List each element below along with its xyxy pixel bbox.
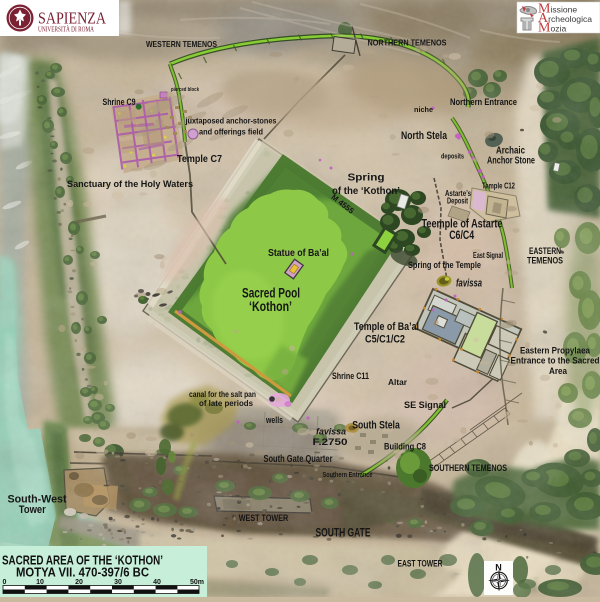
svg-text:Sanctuary of the Holy Waters: Sanctuary of the Holy Waters bbox=[67, 179, 193, 190]
svg-text:TEMENOS: TEMENOS bbox=[527, 256, 563, 266]
svg-text:juxtaposed anchor-stones: juxtaposed anchor-stones bbox=[185, 116, 277, 126]
svg-text:C6/C4: C6/C4 bbox=[449, 230, 474, 242]
svg-text:favissa: favissa bbox=[456, 278, 482, 290]
svg-text:deposits: deposits bbox=[441, 152, 464, 161]
svg-text:favissa: favissa bbox=[316, 427, 346, 437]
svg-text:North Stela: North Stela bbox=[401, 130, 448, 142]
svg-text:EASTERN: EASTERN bbox=[529, 246, 561, 256]
svg-text:UNIVERSITÀ DI ROMA: UNIVERSITÀ DI ROMA bbox=[38, 24, 94, 34]
svg-text:Statue of Ba’al: Statue of Ba’al bbox=[268, 247, 329, 259]
svg-text:SE Signal: SE Signal bbox=[404, 400, 446, 410]
svg-text:Shrine C9: Shrine C9 bbox=[103, 97, 136, 107]
svg-text:wells: wells bbox=[265, 415, 283, 425]
svg-text:Spring: Spring bbox=[348, 172, 385, 184]
svg-text:NORTHERN TEMENOS: NORTHERN TEMENOS bbox=[368, 38, 447, 48]
svg-text:Teemple of Astarte: Teemple of Astarte bbox=[422, 219, 503, 231]
svg-text:Temple C7: Temple C7 bbox=[177, 154, 222, 165]
svg-text:Temple of Ba’al: Temple of Ba’al bbox=[354, 321, 419, 333]
svg-text:Mozia: Mozia bbox=[538, 21, 566, 36]
svg-text:South Gate Quarter: South Gate Quarter bbox=[264, 454, 333, 465]
svg-text:East Signal: East Signal bbox=[473, 250, 503, 260]
svg-text:‘Kothon’: ‘Kothon’ bbox=[249, 299, 292, 314]
svg-text:SOUTH GATE: SOUTH GATE bbox=[316, 528, 371, 540]
svg-text:Shrine C11: Shrine C11 bbox=[332, 371, 369, 381]
svg-text:Temple C12: Temple C12 bbox=[482, 182, 515, 191]
svg-text:20: 20 bbox=[75, 579, 83, 586]
svg-text:30: 30 bbox=[114, 579, 122, 586]
svg-text:Southern Entrance: Southern Entrance bbox=[323, 472, 373, 479]
svg-text:of the ‘Kothon’: of the ‘Kothon’ bbox=[332, 185, 400, 197]
svg-text:Northern Entrance: Northern Entrance bbox=[450, 97, 517, 107]
svg-text:and offerings field: and offerings field bbox=[199, 127, 263, 137]
svg-text:Building C8: Building C8 bbox=[384, 442, 426, 452]
svg-text:Spring of the Temple: Spring of the Temple bbox=[408, 260, 481, 271]
svg-text:SOUTHERN TEMENOS: SOUTHERN TEMENOS bbox=[429, 463, 507, 474]
svg-text:Altar: Altar bbox=[388, 378, 407, 387]
svg-text:10: 10 bbox=[36, 579, 44, 586]
svg-text:EAST TOWER: EAST TOWER bbox=[398, 559, 443, 570]
svg-text:F.2750: F.2750 bbox=[313, 437, 348, 447]
svg-text:Area: Area bbox=[549, 366, 568, 376]
svg-text:Eastern Propylaea: Eastern Propylaea bbox=[520, 346, 591, 356]
svg-text:Tower: Tower bbox=[19, 504, 47, 516]
svg-text:Deposit: Deposit bbox=[447, 197, 468, 206]
svg-text:40: 40 bbox=[153, 579, 161, 586]
svg-text:MOTYA VII. 470-397/6 BC: MOTYA VII. 470-397/6 BC bbox=[16, 566, 149, 580]
svg-text:WESTERN TEMENOS: WESTERN TEMENOS bbox=[146, 39, 217, 49]
svg-text:pierced block: pierced block bbox=[171, 87, 200, 93]
svg-text:WEST TOWER: WEST TOWER bbox=[239, 513, 289, 523]
svg-text:South Stela: South Stela bbox=[352, 420, 400, 432]
svg-text:Entrance to the Sacred: Entrance to the Sacred bbox=[511, 356, 600, 366]
svg-text:Anchor Stone: Anchor Stone bbox=[487, 156, 535, 167]
svg-text:50m: 50m bbox=[190, 579, 204, 586]
svg-text:of late periods: of late periods bbox=[199, 398, 253, 408]
svg-text:0: 0 bbox=[3, 579, 7, 586]
svg-text:C5/C1/C2: C5/C1/C2 bbox=[365, 334, 405, 346]
svg-text:niche: niche bbox=[414, 107, 433, 114]
svg-text:N: N bbox=[495, 563, 502, 573]
